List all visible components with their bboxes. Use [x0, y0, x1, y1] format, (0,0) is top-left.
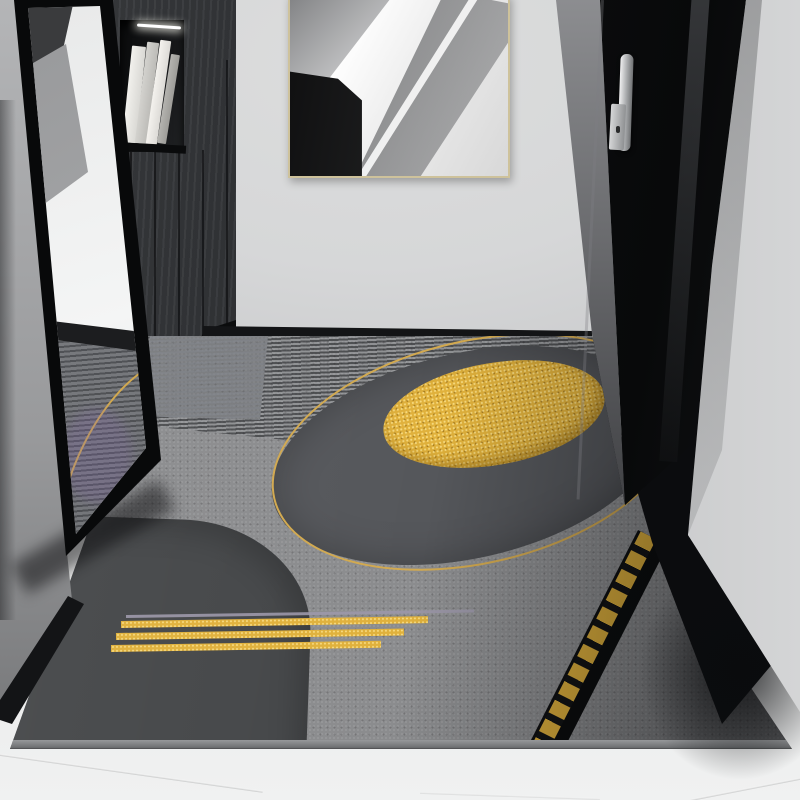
hallway-scene [0, 0, 800, 800]
left-corner-shade [0, 100, 16, 620]
keyhole [616, 126, 620, 133]
cabinet-plank-groove [226, 60, 228, 340]
framed-artwork [288, 0, 510, 178]
